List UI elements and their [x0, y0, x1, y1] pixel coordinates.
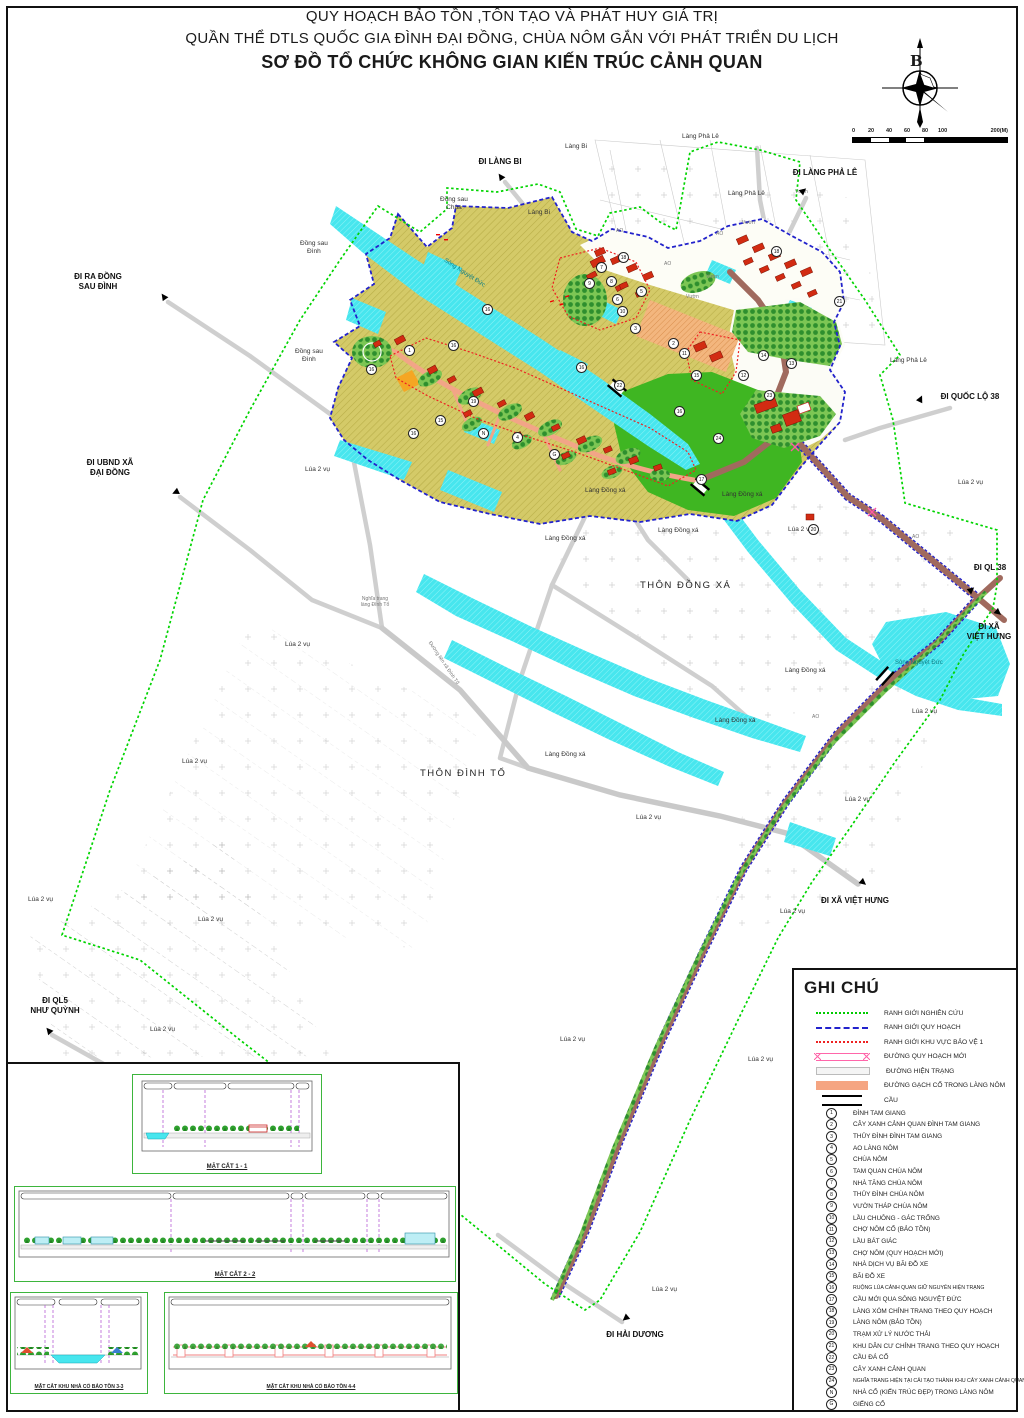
section-caption: MẶT CẮT 2 - 2 — [15, 1272, 455, 1278]
map-label-rice: Lúa 2 vụ — [912, 708, 937, 716]
legend-label: KHU DÂN CƯ CHỈNH TRANG THEO QUY HOẠCH — [853, 1343, 999, 1350]
existing-road-symbol — [816, 1067, 870, 1075]
map-label-garden: Vườn — [742, 220, 755, 226]
legend-label: NGHĨA TRANG HIỆN TẠI CẢI TẠO THÀNH KHU C… — [853, 1378, 1024, 1384]
map-label-rice: Lúa 2 vụ — [636, 814, 661, 822]
legend-numbered-item: 14NHÀ DỊCH VỤ BÃI ĐỖ XE — [802, 1259, 1008, 1271]
map-marker: 16 — [448, 340, 459, 351]
legend-numbered-item: 2CÂY XANH CẢNH QUAN ĐÌNH TAM GIANG — [802, 1119, 1008, 1131]
compass-rose-icon — [878, 36, 962, 132]
legend-key: 11 — [826, 1224, 837, 1235]
scale-tick: 60 — [904, 128, 910, 134]
map-label-village: Làng Phả Lê — [728, 190, 765, 198]
map-marker: 18 — [771, 246, 782, 257]
map-label-pond: AO — [616, 228, 623, 234]
map-label-field: Đồng sau Chùa — [440, 196, 468, 212]
legend-label: GIẾNG CỔ — [853, 1401, 885, 1408]
map-marker: 9 — [584, 278, 595, 289]
legend-key: 4 — [826, 1143, 837, 1154]
legend-numbered-item: 18LÀNG XÓM CHỈNH TRANG THEO QUY HOẠCH — [802, 1305, 1008, 1317]
map-label-di-ra-dong: ĐI RA ĐỒNG SAU ĐÌNH — [48, 272, 148, 292]
legend-numbered-item: 15BÃI ĐỖ XE — [802, 1270, 1008, 1282]
map-marker: 5 — [636, 286, 647, 297]
protection-boundary-symbol — [816, 1041, 868, 1043]
map-label-rice: Lúa 2 vụ — [28, 896, 53, 904]
legend-label: LÀNG NÔM (BẢO TỒN) — [853, 1319, 922, 1326]
legend-key: 18 — [826, 1306, 837, 1317]
map-marker: N — [478, 428, 489, 439]
map-marker: 16 — [366, 364, 377, 375]
map-marker: 8 — [606, 276, 617, 287]
legend-label: CHỢ NÔM CỔ (BẢO TỒN) — [853, 1226, 930, 1233]
legend-label: LÀNG XÓM CHỈNH TRANG THEO QUY HOẠCH — [853, 1308, 993, 1315]
map-label-thon-dinh-to: THÔN ĐÌNH TỔ — [420, 768, 506, 780]
legend-key: 7 — [826, 1178, 837, 1189]
legend-key: 22 — [826, 1352, 837, 1363]
legend-numbered-item: 8THỦY ĐÌNH CHÙA NÔM — [802, 1189, 1008, 1201]
scale-tick: 40 — [886, 128, 892, 134]
map-label-di-xa-viet-hung-2: ĐI XÃ VIỆT HƯNG — [800, 896, 910, 906]
legend-numbered-item: 24NGHĨA TRANG HIỆN TẠI CẢI TẠO THÀNH KHU… — [802, 1375, 1008, 1387]
legend-label: RANH GIỚI KHU VỰC BẢO VỆ 1 — [884, 1039, 983, 1046]
cross-sections-inset: MẶT CẮT 1 - 1 — [6, 1062, 460, 1412]
legend-label: NHÀ DỊCH VỤ BÃI ĐỖ XE — [853, 1261, 928, 1268]
legend-label: CHÙA NÔM — [853, 1156, 887, 1163]
legend-label: BÃI ĐỖ XE — [853, 1273, 885, 1280]
map-label-cemetery: Nghĩa trang làng Đình Tổ — [352, 596, 398, 609]
map-marker: 1 — [404, 345, 415, 356]
legend-numbered-item: 23CÂY XANH CẢNH QUAN — [802, 1364, 1008, 1376]
new-road-symbol — [816, 1053, 868, 1061]
map-label-thon-dong-xa: THÔN ĐỒNG XÁ — [640, 580, 731, 592]
legend-numbered-item: GGIẾNG CỔ — [802, 1399, 1008, 1411]
legend-key: 21 — [826, 1341, 837, 1352]
map-marker: 21 — [834, 296, 845, 307]
legend-label: ĐƯỜNG QUY HOẠCH MỚI — [884, 1053, 966, 1060]
legend-key: 17 — [826, 1294, 837, 1305]
legend-label: NHÀ CỔ (KIẾN TRÚC ĐẸP) TRONG LÀNG NÔM — [853, 1389, 994, 1396]
legend-label: CẦU ĐÁ CỔ — [853, 1354, 889, 1361]
map-label-di-lang-bi: ĐI LÀNG BI — [455, 157, 545, 167]
legend-label: CÂY XANH CẢNH QUAN — [853, 1366, 926, 1373]
map-label-rice: Lúa 2 vụ — [958, 479, 983, 487]
scale-bar: 0 20 40 60 80 100 200(M) — [852, 128, 1008, 143]
map-label-village: Làng Phả Lê — [682, 133, 719, 141]
legend-line-item: CẦU — [802, 1093, 1008, 1108]
map-label-river: Sông Nguyệt Đức — [895, 660, 943, 668]
legend-numbered-item: 9VƯỜN THÁP CHÙA NÔM — [802, 1201, 1008, 1213]
section-caption: MẶT CẮT 1 - 1 — [133, 1164, 321, 1170]
legend-line-item: ĐƯỜNG HIỆN TRẠNG — [802, 1064, 1008, 1079]
map-marker: 23 — [764, 390, 775, 401]
map-label-di-ql-38: ĐI QL 38 — [962, 563, 1018, 573]
legend-numbered-item: 1ĐÌNH TAM GIANG — [802, 1108, 1008, 1120]
legend-label: ĐƯỜNG GẠCH CỔ TRONG LÀNG NÔM — [884, 1082, 1005, 1089]
legend-numbered-item: 17CẦU MỚI QUA SÔNG NGUYỆT ĐỨC — [802, 1294, 1008, 1306]
legend-key: N — [826, 1387, 837, 1398]
map-label-village: Làng Bi — [565, 143, 587, 151]
map-label-pond: AO — [716, 231, 723, 237]
legend-numbered-item: 16RUỘNG LÚA CẢNH QUAN GIỮ NGUYÊN HIỆN TR… — [802, 1282, 1008, 1294]
legend-numbered-item: 19LÀNG NÔM (BẢO TỒN) — [802, 1317, 1008, 1329]
scale-tick: 0 — [852, 128, 855, 134]
legend-key: 15 — [826, 1271, 837, 1282]
legend-label: LẦU CHUÔNG - GÁC TRỐNG — [853, 1215, 940, 1222]
map-label-village: Làng Đồng xá — [545, 535, 585, 543]
map-label-di-ql5: ĐI QL5 NHƯ QUỲNH — [10, 996, 100, 1016]
map-marker: 12 — [738, 370, 749, 381]
map-marker: 4 — [512, 432, 523, 443]
map-label-rice: Lúa 2 vụ — [305, 466, 330, 474]
legend-label: CẦU — [884, 1097, 898, 1104]
section-panel-1: MẶT CẮT 1 - 1 — [132, 1074, 322, 1174]
legend-numbered-item: 6TAM QUAN CHÙA NÔM — [802, 1166, 1008, 1178]
scale-tick: 80 — [922, 128, 928, 134]
legend-key: 3 — [826, 1131, 837, 1142]
map-marker: 22 — [614, 380, 625, 391]
legend-key: 19 — [826, 1317, 837, 1328]
planning-boundary-symbol — [816, 1027, 868, 1029]
map-label-pond: AO — [912, 534, 919, 540]
legend-label: THỦY ĐÌNH CHÙA NÔM — [853, 1191, 924, 1198]
map-label-di-xa-viet-hung: ĐI XÃ VIỆT HƯNG — [958, 622, 1020, 642]
legend-numbered-item: 5CHÙA NÔM — [802, 1154, 1008, 1166]
map-label-village: Làng Đồng xá — [715, 717, 755, 725]
map-marker: 18 — [618, 252, 629, 263]
legend-label: RUỘNG LÚA CẢNH QUAN GIỮ NGUYÊN HIỆN TRẠN… — [853, 1285, 984, 1291]
section-panel-4: MẶT CẮT KHU NHÀ CỔ BẢO TỒN 4-4 — [164, 1292, 458, 1394]
legend-key: 6 — [826, 1166, 837, 1177]
map-label-village: Làng Phả Lê — [890, 357, 927, 365]
legend-line-item: ĐƯỜNG GẠCH CỔ TRONG LÀNG NÔM — [802, 1079, 1008, 1094]
map-marker: 17 — [696, 474, 707, 485]
section-panel-2: MẶT CẮT 2 - 2 — [14, 1186, 456, 1282]
plan-sheet: QUY HOẠCH BẢO TỒN ,TÔN TẠO VÀ PHÁT HUY G… — [0, 0, 1024, 1418]
legend-key: 12 — [826, 1236, 837, 1247]
legend-key: 13 — [826, 1248, 837, 1259]
scale-bar-segments — [852, 137, 1008, 143]
map-marker: 15 — [435, 415, 446, 426]
legend-label: THỦY ĐÌNH ĐÌNH TAM GIANG — [853, 1133, 942, 1140]
map-label-village: Làng Đồng xá — [722, 491, 762, 499]
legend-numbered-item: 13CHỢ NÔM (QUY HOẠCH MỚI) — [802, 1247, 1008, 1259]
map-label-pond: AO — [812, 714, 819, 720]
legend-key: 24 — [826, 1376, 837, 1387]
map-marker: 10 — [617, 306, 628, 317]
legend-numbered-item: 3THỦY ĐÌNH ĐÌNH TAM GIANG — [802, 1131, 1008, 1143]
bridge-symbol — [822, 1095, 862, 1106]
legend-label: TRẠM XỬ LÝ NƯỚC THẢI — [853, 1331, 930, 1338]
legend-numbered-item: 11CHỢ NÔM CỔ (BẢO TỒN) — [802, 1224, 1008, 1236]
map-label-rice: Lúa 2 vụ — [150, 1026, 175, 1034]
legend-label: RANH GIỚI QUY HOẠCH — [884, 1024, 961, 1031]
research-boundary-symbol — [816, 1012, 868, 1014]
map-marker: 16 — [408, 428, 419, 439]
legend-label: ĐƯỜNG HIỆN TRẠNG — [886, 1068, 954, 1075]
legend-label: AO LÀNG NÔM — [853, 1145, 898, 1152]
map-marker: 13 — [786, 358, 797, 369]
legend-key: 20 — [826, 1329, 837, 1340]
map-label-garden: Vườn — [706, 274, 719, 280]
legend-numbered-item: 22CẦU ĐÁ CỔ — [802, 1352, 1008, 1364]
map-marker: 16 — [482, 304, 493, 315]
legend-key: 8 — [826, 1189, 837, 1200]
legend-label: CHỢ NÔM (QUY HOẠCH MỚI) — [853, 1250, 943, 1257]
legend-line-item: RANH GIỚI KHU VỰC BẢO VỆ 1 — [802, 1035, 1008, 1050]
legend-numbered-item: 12LẦU BÁT GIÁC — [802, 1236, 1008, 1248]
map-label-rice: Lúa 2 vụ — [748, 1056, 773, 1064]
map-label-field: Đồng sau Đình — [295, 348, 323, 364]
map-marker: 6 — [612, 294, 623, 305]
legend-key: G — [826, 1399, 837, 1410]
legend-label: CÂY XANH CẢNH QUAN ĐÌNH TAM GIANG — [853, 1121, 980, 1128]
map-marker: 20 — [808, 524, 819, 535]
map-label-di-lang-pha-le: ĐI LÀNG PHẢ LÊ — [770, 168, 880, 178]
map-label-rice: Lúa 2 vụ — [652, 1286, 677, 1294]
legend-key: 14 — [826, 1259, 837, 1270]
legend-label: ĐÌNH TAM GIANG — [853, 1110, 906, 1117]
map-marker: 14 — [758, 350, 769, 361]
legend-numbered-item: 10LẦU CHUÔNG - GÁC TRỐNG — [802, 1212, 1008, 1224]
legend-title: GHI CHÚ — [804, 978, 1008, 998]
legend-label: RANH GIỚI NGHIÊN CỨU — [884, 1010, 963, 1017]
legend-panel: GHI CHÚ RANH GIỚI NGHIÊN CỨU RANH GIỚI Q… — [792, 968, 1018, 1412]
legend-line-item: ĐƯỜNG QUY HOẠCH MỚI — [802, 1050, 1008, 1065]
map-marker: 3 — [630, 323, 641, 334]
legend-numbered-item: 4AO LÀNG NÔM — [802, 1142, 1008, 1154]
section-caption: MẶT CẮT KHU NHÀ CỔ BẢO TỒN 4-4 — [165, 1384, 457, 1390]
brick-road-symbol — [816, 1081, 868, 1090]
map-marker: 24 — [713, 433, 724, 444]
map-label-rice: Lúa 2 vụ — [182, 758, 207, 766]
section-panel-3: MẶT CẮT KHU NHÀ CỔ BẢO TỒN 3-3 — [10, 1292, 148, 1394]
legend-numbered-item: 7NHÀ TĂNG CHÙA NÔM — [802, 1177, 1008, 1189]
legend-numbered-item: NNHÀ CỔ (KIẾN TRÚC ĐẸP) TRONG LÀNG NÔM — [802, 1387, 1008, 1399]
map-marker: 11 — [679, 348, 690, 359]
map-marker: 2 — [668, 338, 679, 349]
scale-end-label: 200(M) — [991, 128, 1008, 134]
scale-tick: 20 — [868, 128, 874, 134]
legend-key: 16 — [826, 1282, 837, 1293]
map-label-garden: Vườn — [686, 294, 699, 300]
compass-north-label: B — [910, 52, 923, 70]
section-caption: MẶT CẮT KHU NHÀ CỔ BẢO TỒN 3-3 — [11, 1384, 147, 1390]
map-label-di-ubnd: ĐI UBND XÃ ĐẠI ĐỒNG — [60, 458, 160, 478]
map-label-di-quoc-lo-38: ĐI QUỐC LỘ 38 — [925, 392, 1015, 402]
map-label-field: Đồng sau Đình — [300, 240, 328, 256]
map-label-village: Làng Đồng xá — [585, 487, 625, 495]
map-label-di-hai-duong: ĐI HẢI DƯƠNG — [585, 1330, 685, 1340]
map-label-rice: Lúa 2 vụ — [780, 908, 805, 916]
map-label-rice: Lúa 2 vụ — [845, 796, 870, 804]
legend-label: NHÀ TĂNG CHÙA NÔM — [853, 1180, 922, 1187]
map-marker: 15 — [691, 370, 702, 381]
legend-label: VƯỜN THÁP CHÙA NÔM — [853, 1203, 928, 1210]
map-label-village: Làng Đồng xá — [658, 527, 698, 535]
legend-key: 10 — [826, 1213, 837, 1224]
map-marker: 19 — [468, 396, 479, 407]
map-label-pond: AO — [664, 261, 671, 267]
map-label-village: Làng Bi — [528, 209, 550, 217]
map-label-rice: Lúa 2 vụ — [198, 916, 223, 924]
legend-line-item: RANH GIỚI QUY HOẠCH — [802, 1021, 1008, 1036]
legend-key: 23 — [826, 1364, 837, 1375]
legend-label: TAM QUAN CHÙA NÔM — [853, 1168, 922, 1175]
map-marker: 7 — [596, 262, 607, 273]
legend-key: 5 — [826, 1154, 837, 1165]
map-label-rice: Lúa 2 vụ — [560, 1036, 585, 1044]
legend-key: 9 — [826, 1201, 837, 1212]
map-marker: 16 — [674, 406, 685, 417]
legend-line-item: RANH GIỚI NGHIÊN CỨU — [802, 1006, 1008, 1021]
legend-key: 1 — [826, 1108, 837, 1119]
map-label-rice: Lúa 2 vụ — [285, 641, 310, 649]
legend-key: 2 — [826, 1119, 837, 1130]
map-label-village: Làng Đồng xá — [545, 751, 585, 759]
legend-numbered-item: 20TRẠM XỬ LÝ NƯỚC THẢI — [802, 1329, 1008, 1341]
scale-tick: 100 — [938, 128, 947, 134]
map-marker: 16 — [576, 362, 587, 373]
map-marker: G — [549, 449, 560, 460]
legend-label: LẦU BÁT GIÁC — [853, 1238, 897, 1245]
legend-numbered-item: 21KHU DÂN CƯ CHỈNH TRANG THEO QUY HOẠCH — [802, 1340, 1008, 1352]
legend-label: CẦU MỚI QUA SÔNG NGUYỆT ĐỨC — [853, 1296, 961, 1303]
map-label-village: Làng Đồng xá — [785, 667, 825, 675]
